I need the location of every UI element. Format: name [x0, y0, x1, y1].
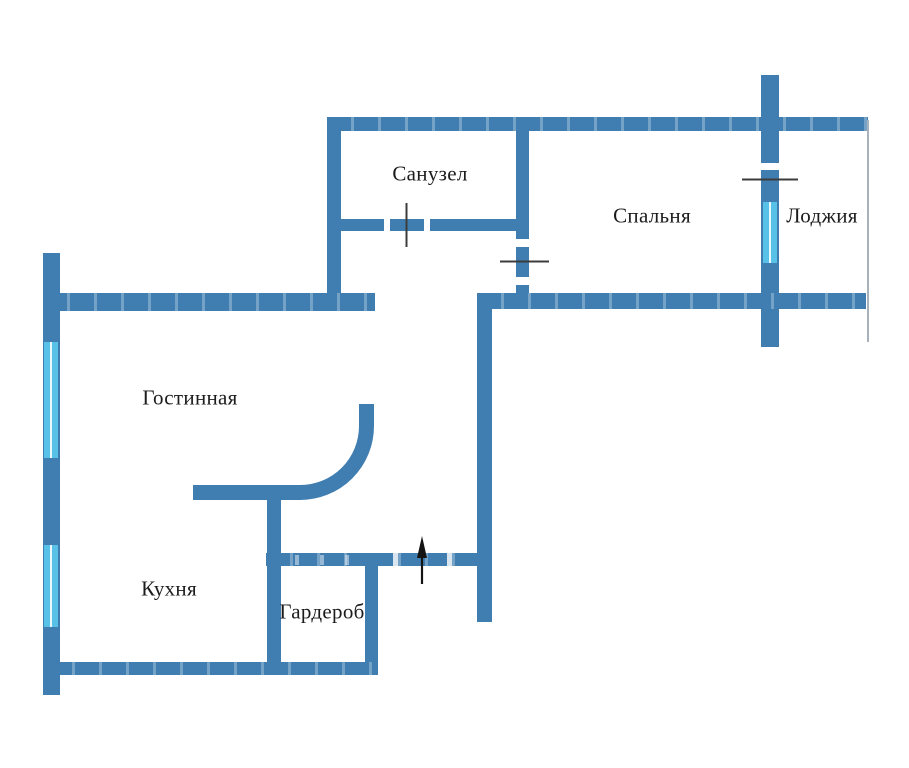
wall-central-vertical: [477, 293, 492, 622]
kitchen-window-lower: [44, 545, 58, 627]
wall-wardrobe-right: [365, 553, 378, 675]
room-label-kitchen: Кухня: [141, 577, 197, 602]
door-opening-corridor-bottom-jamb: [515, 277, 530, 285]
wall-bathroom-bedroom-divider: [516, 117, 529, 294]
room-label-living: Гостинная: [142, 386, 237, 411]
door-opening-entry-left-jamb: [393, 553, 398, 566]
wall-main-right: [477, 293, 866, 309]
wall-bathroom-left: [327, 117, 341, 294]
kitchen-partition-arc: [193, 404, 367, 493]
room-label-wardrobe: Гардероб: [279, 600, 364, 625]
door-opening-bathroom-right-jamb: [424, 218, 430, 232]
door-opening-bathroom-left-jamb: [384, 218, 390, 232]
entry-wall-notch: [345, 555, 349, 565]
wall-outer-left: [43, 253, 60, 695]
door-opening-loggia-jamb: [760, 163, 780, 170]
living-room-window-upper: [44, 342, 58, 458]
room-label-bedroom: Спальня: [613, 204, 691, 229]
door-opening-corridor-top-jamb: [515, 239, 530, 247]
room-label-bathroom: Санузел: [392, 162, 467, 187]
room-label-loggia: Лоджия: [786, 204, 858, 229]
loggia-window: [763, 202, 777, 263]
wall-main-left: [43, 293, 375, 311]
wall-kitchen-hall-divider: [267, 499, 281, 675]
floor-plan: Санузел Спальня Лоджия Гостинная Кухня Г…: [0, 0, 909, 768]
wall-bottom: [48, 662, 378, 675]
door-opening-entry-right-jamb: [447, 553, 452, 566]
entry-wall-notch: [320, 555, 324, 565]
wall-bathroom-bottom: [339, 219, 528, 231]
loggia-glazing-line: [867, 120, 869, 342]
wall-top: [327, 117, 868, 131]
entry-wall-notch: [295, 555, 299, 565]
